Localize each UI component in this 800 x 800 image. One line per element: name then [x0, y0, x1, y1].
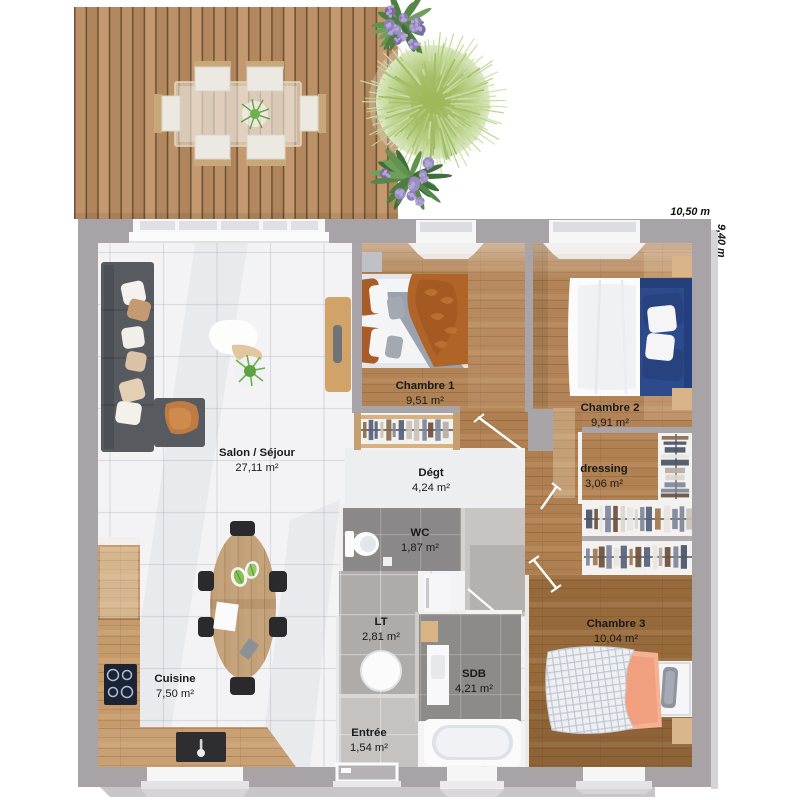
svg-text:SDB: SDB: [462, 668, 486, 680]
svg-text:9,40 m: 9,40 m: [715, 224, 727, 258]
svg-text:9,91 m²: 9,91 m²: [591, 417, 629, 429]
svg-text:7,50 m²: 7,50 m²: [156, 688, 194, 700]
svg-text:27,11 m²: 27,11 m²: [235, 462, 279, 474]
svg-text:Salon / Séjour: Salon / Séjour: [219, 447, 296, 459]
svg-text:1,87 m²: 1,87 m²: [401, 542, 439, 554]
svg-text:10,04 m²: 10,04 m²: [594, 633, 638, 645]
svg-text:3,06 m²: 3,06 m²: [585, 478, 623, 490]
svg-text:LT: LT: [374, 616, 387, 628]
svg-text:Entrée: Entrée: [351, 727, 386, 739]
svg-text:4,24 m²: 4,24 m²: [412, 482, 450, 494]
svg-text:Chambre 2: Chambre 2: [581, 402, 640, 414]
svg-text:dressing: dressing: [580, 463, 628, 475]
svg-text:2,81 m²: 2,81 m²: [362, 631, 400, 643]
svg-text:9,51 m²: 9,51 m²: [406, 395, 444, 407]
svg-text:1,54 m²: 1,54 m²: [350, 742, 388, 754]
svg-text:Chambre 3: Chambre 3: [587, 618, 646, 630]
svg-text:Cuisine: Cuisine: [154, 673, 195, 685]
svg-text:10,50 m: 10,50 m: [670, 206, 710, 218]
svg-text:4,21 m²: 4,21 m²: [455, 683, 493, 695]
svg-text:WC: WC: [411, 527, 430, 539]
svg-text:Dégt: Dégt: [418, 467, 444, 479]
svg-text:Chambre 1: Chambre 1: [396, 380, 456, 392]
